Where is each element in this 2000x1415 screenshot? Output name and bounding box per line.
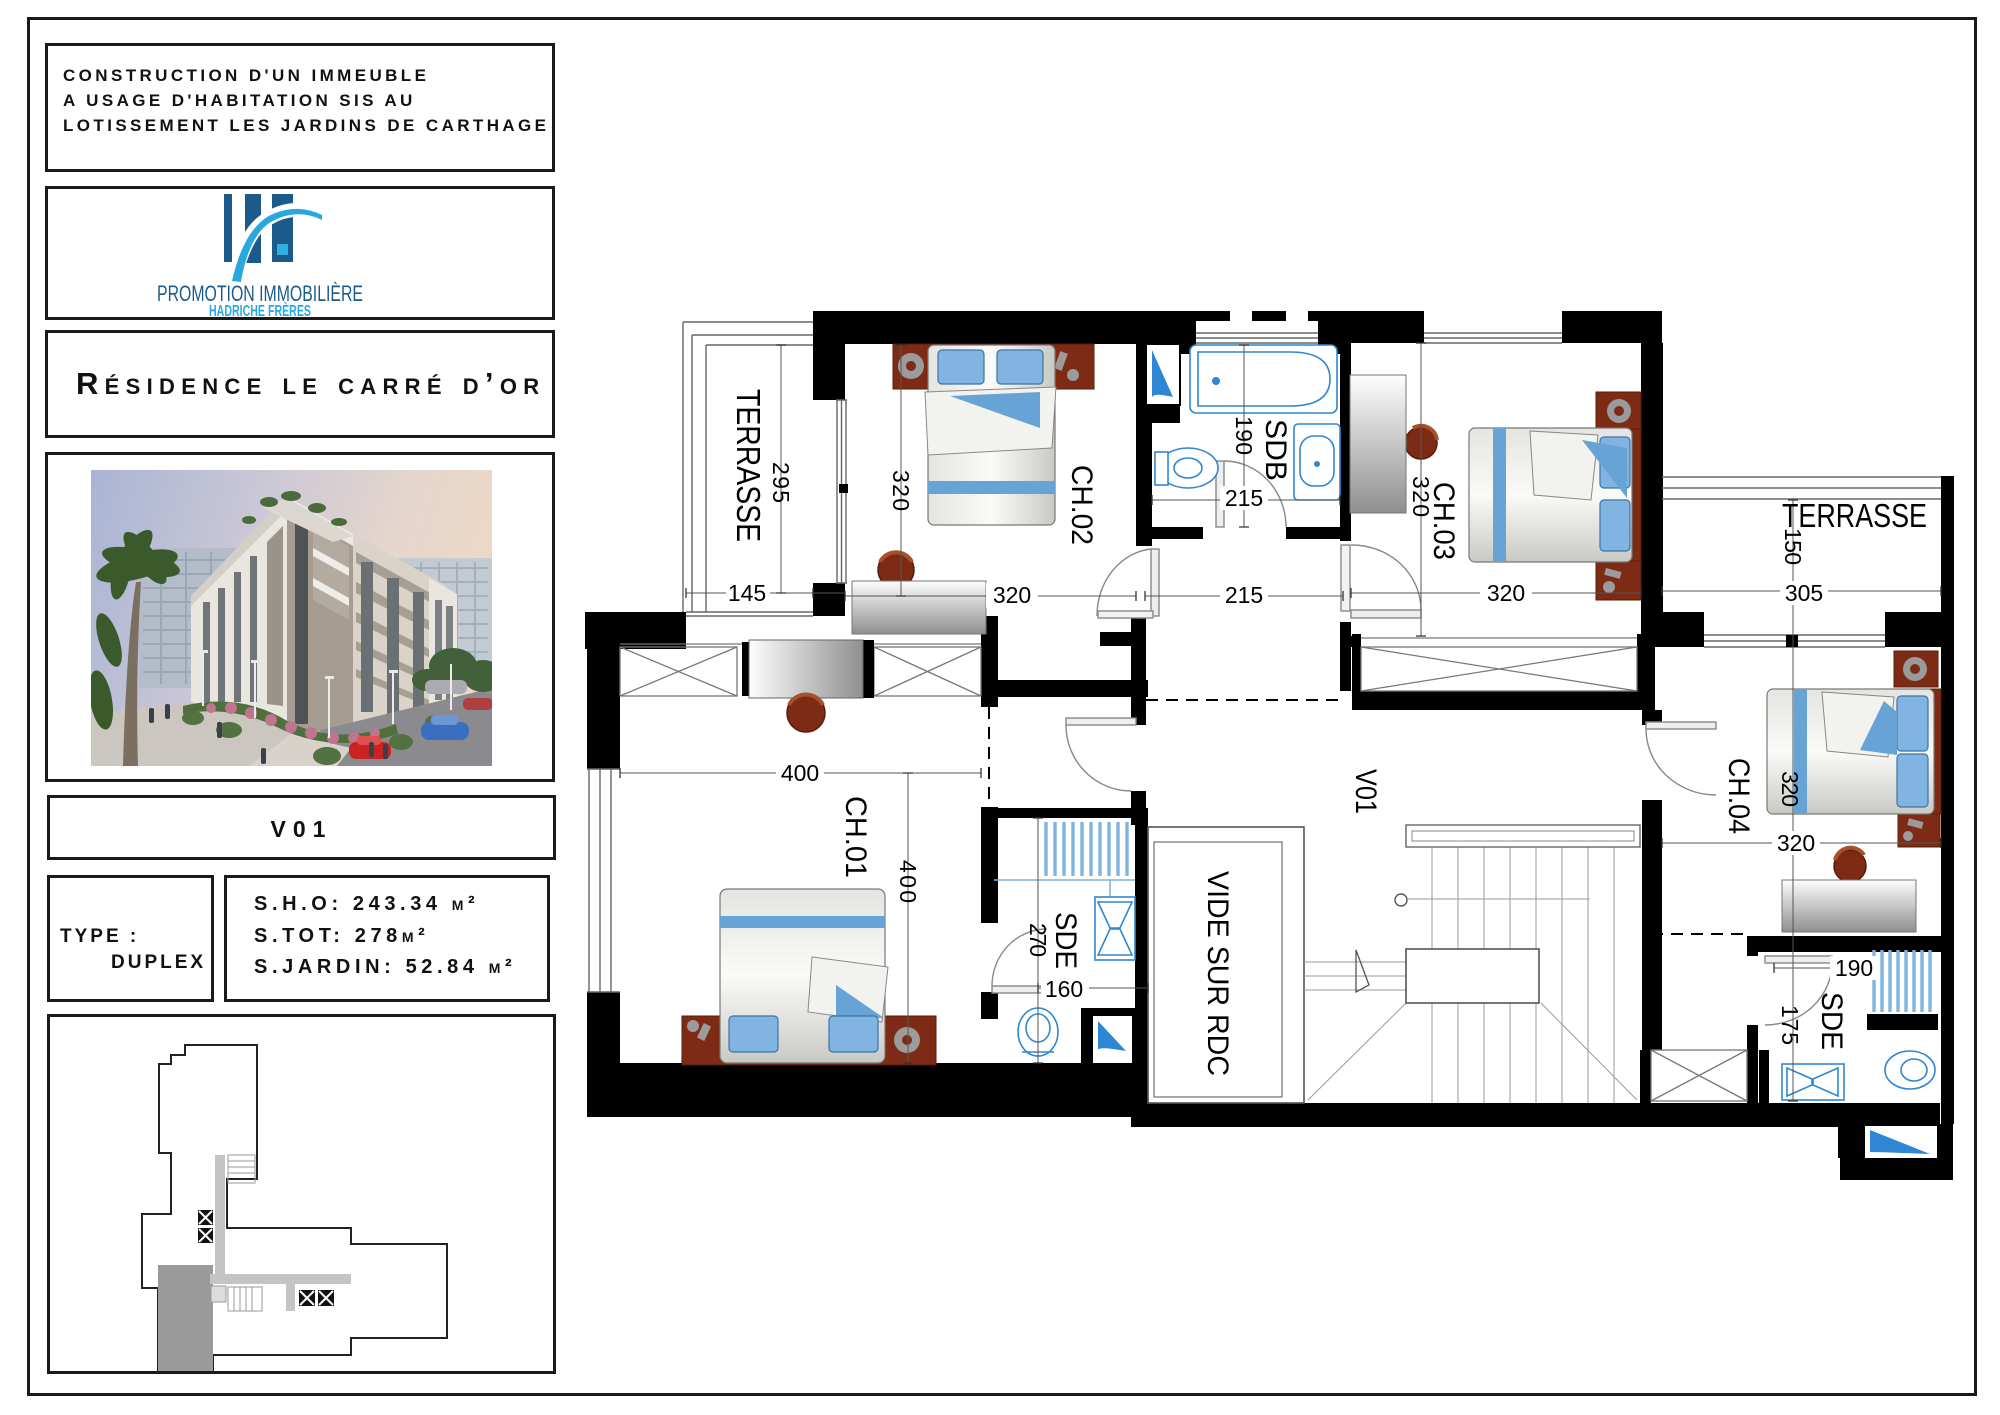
- svg-text:150: 150: [1780, 528, 1806, 565]
- svg-text:V01: V01: [1349, 769, 1382, 814]
- svg-text:CH.03: CH.03: [1427, 482, 1460, 560]
- svg-text:295: 295: [768, 462, 794, 503]
- svg-text:175: 175: [1777, 1005, 1803, 1045]
- svg-text:TERRASSE: TERRASSE: [730, 389, 767, 542]
- svg-text:VIDE SUR RDC: VIDE SUR RDC: [1201, 871, 1234, 1076]
- svg-text:CH.02: CH.02: [1065, 465, 1098, 545]
- svg-text:320: 320: [1777, 830, 1815, 856]
- svg-text:400: 400: [781, 760, 819, 786]
- svg-text:400: 400: [895, 860, 921, 903]
- svg-text:145: 145: [728, 580, 766, 606]
- svg-text:190: 190: [1835, 955, 1873, 981]
- svg-text:320: 320: [1487, 580, 1525, 606]
- svg-text:SDB: SDB: [1259, 419, 1292, 481]
- svg-text:320: 320: [1777, 771, 1803, 807]
- svg-text:CH.01: CH.01: [839, 796, 872, 878]
- svg-text:215: 215: [1225, 582, 1263, 608]
- svg-text:CH.04: CH.04: [1722, 758, 1755, 834]
- svg-text:SDE: SDE: [1815, 992, 1848, 1050]
- svg-text:270: 270: [1025, 923, 1051, 957]
- svg-text:320: 320: [993, 582, 1031, 608]
- svg-text:305: 305: [1785, 580, 1823, 606]
- svg-text:SDE: SDE: [1049, 912, 1082, 969]
- svg-text:190: 190: [1231, 416, 1257, 455]
- svg-text:320: 320: [888, 470, 914, 511]
- svg-text:215: 215: [1225, 485, 1263, 511]
- svg-text:160: 160: [1045, 976, 1083, 1002]
